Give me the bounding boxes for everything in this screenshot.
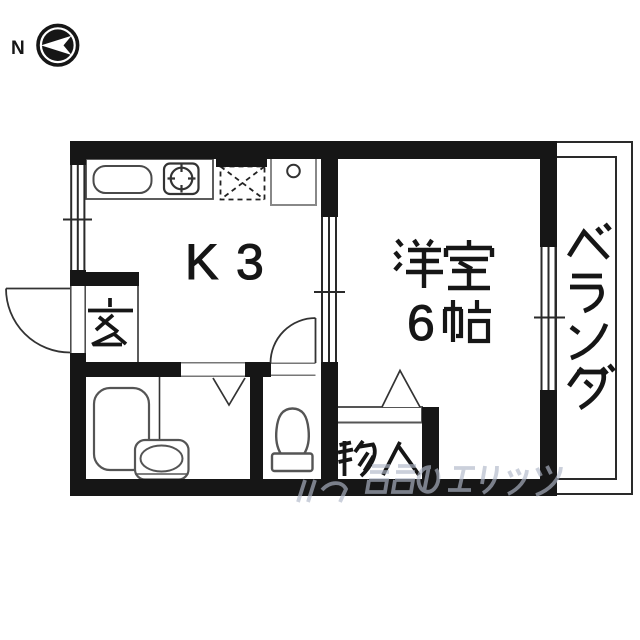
svg-text:N: N — [11, 38, 25, 59]
svg-text:3: 3 — [236, 234, 264, 290]
svg-text:K: K — [185, 234, 218, 290]
svg-text:6: 6 — [407, 295, 435, 351]
